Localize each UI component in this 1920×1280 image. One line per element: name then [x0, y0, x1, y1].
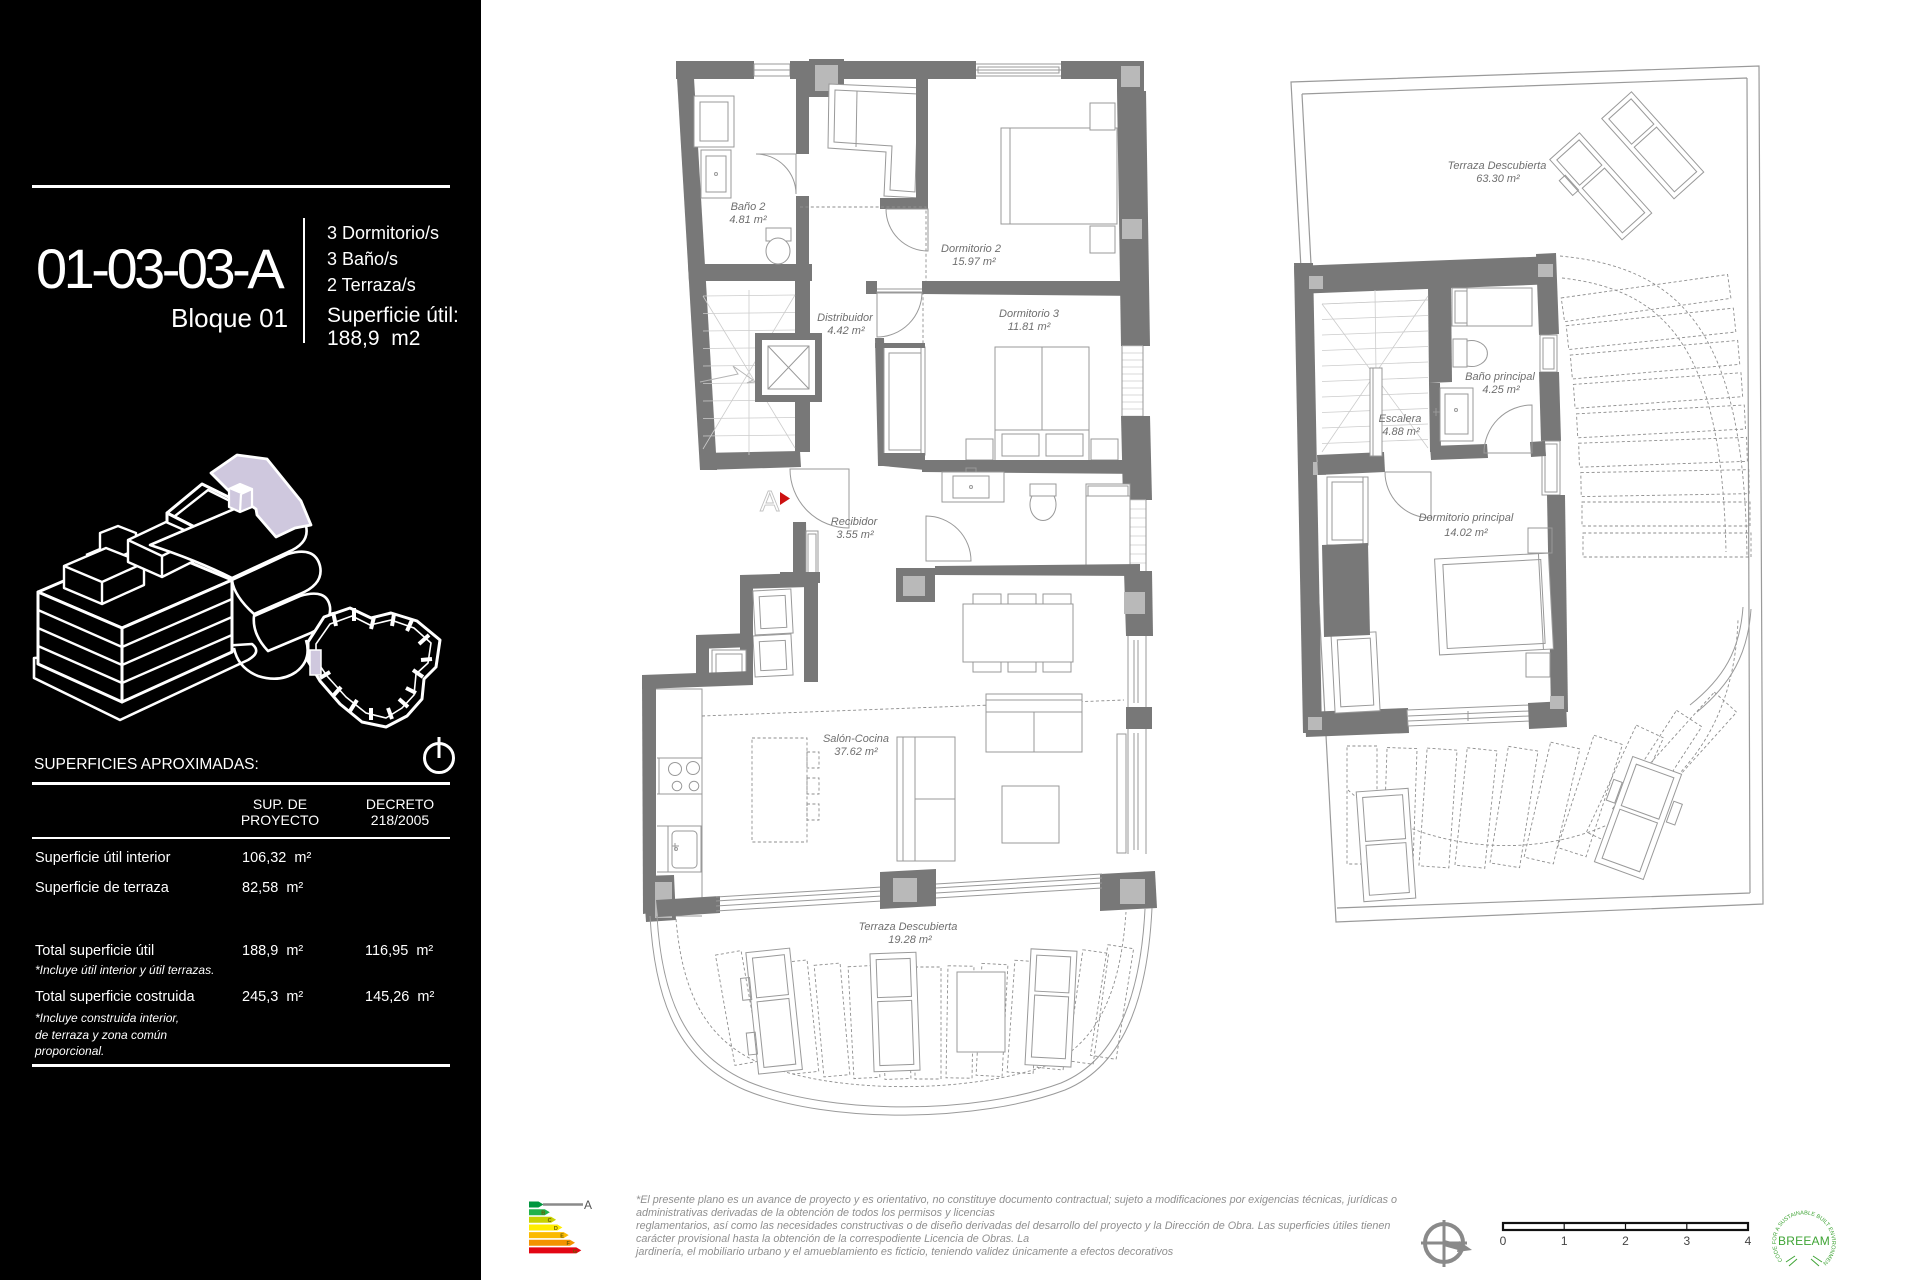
- svg-text:Terraza Descubierta: Terraza Descubierta: [859, 921, 958, 933]
- svg-text:Terraza Descubierta: Terraza Descubierta: [1448, 160, 1547, 172]
- svg-text:4.42 m²: 4.42 m²: [827, 325, 865, 337]
- svg-text:Dormitorio principal: Dormitorio principal: [1419, 512, 1514, 524]
- svg-text:A: A: [760, 486, 780, 518]
- svg-text:reglamentarios, así como las n: reglamentarios, así como las necesidades…: [636, 1220, 1390, 1232]
- svg-text:3: 3: [1683, 1234, 1690, 1248]
- svg-text:19.28 m²: 19.28 m²: [888, 934, 932, 946]
- svg-text:D: D: [554, 1226, 558, 1232]
- svg-text:14.02 m²: 14.02 m²: [1444, 527, 1488, 539]
- svg-text:2: 2: [1622, 1234, 1629, 1248]
- svg-text:Escalera: Escalera: [1379, 413, 1422, 425]
- svg-text:37.62 m²: 37.62 m²: [834, 746, 878, 758]
- svg-text:4: 4: [1745, 1234, 1752, 1248]
- svg-text:E: E: [560, 1234, 564, 1240]
- svg-text:4.88 m²: 4.88 m²: [1382, 426, 1420, 438]
- svg-text:B: B: [541, 1211, 545, 1217]
- svg-text:Salón-Cocina: Salón-Cocina: [823, 733, 889, 745]
- svg-text:1: 1: [1561, 1234, 1568, 1248]
- svg-text:carácter provisional hasta la: carácter provisional hasta la obtención …: [636, 1233, 1029, 1245]
- svg-text:C: C: [548, 1218, 552, 1224]
- svg-text:11.81 m²: 11.81 m²: [1008, 321, 1051, 333]
- svg-text:0: 0: [1500, 1234, 1507, 1248]
- svg-text:Recibidor: Recibidor: [831, 516, 879, 528]
- svg-text:3.55 m²: 3.55 m²: [836, 529, 874, 541]
- svg-text:63.30 m²: 63.30 m²: [1476, 173, 1520, 185]
- svg-text:Distribuidor: Distribuidor: [817, 312, 874, 324]
- svg-text:Baño 2: Baño 2: [731, 201, 766, 213]
- svg-text:15.97 m²: 15.97 m²: [952, 256, 996, 268]
- svg-text:administrativas derivadas de l: administrativas derivadas de la obtenció…: [636, 1207, 995, 1219]
- svg-text:BREEAM: BREEAM: [1778, 1234, 1830, 1248]
- svg-text:Baño principal: Baño principal: [1465, 371, 1535, 383]
- svg-text:4.81 m²: 4.81 m²: [729, 214, 767, 226]
- svg-text:Dormitorio 3: Dormitorio 3: [999, 308, 1060, 320]
- svg-text:jardinería, el mobiliario urba: jardinería, el mobiliario urbano y el am…: [634, 1246, 1174, 1258]
- svg-text:4.25 m²: 4.25 m²: [1482, 384, 1520, 396]
- svg-text:G: G: [573, 1249, 577, 1255]
- svg-text:Dormitorio 2: Dormitorio 2: [941, 243, 1001, 255]
- svg-text:*El presente plano es un avanc: *El presente plano es un avance de proye…: [636, 1194, 1397, 1206]
- svg-text:A: A: [584, 1198, 592, 1212]
